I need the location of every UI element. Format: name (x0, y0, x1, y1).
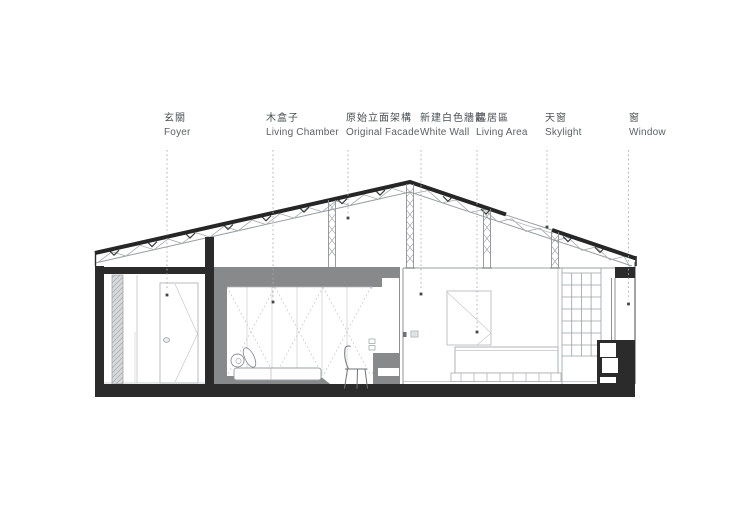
left-exterior-wall (95, 266, 104, 397)
roof-top-chord (95, 182, 636, 259)
white-wall-section (400, 268, 407, 384)
foyer-ceiling (104, 267, 214, 274)
label-original-facade: 原始立面架構 Original Facade (346, 114, 420, 138)
label-window-zh: 窗 (629, 114, 666, 124)
round-pillow (231, 354, 244, 367)
label-original-facade-en: Original Facade (346, 128, 420, 138)
right-header-beam (615, 267, 635, 278)
label-living-chamber: 木盒子 Living Chamber (266, 114, 339, 138)
label-living-area-en: Living Area (476, 128, 528, 138)
foyer (112, 275, 198, 384)
label-foyer: 玄關 Foyer (164, 114, 191, 138)
label-foyer-en: Foyer (164, 128, 191, 138)
grid-window (558, 268, 601, 384)
section-drawing (0, 0, 740, 523)
truss-post (550, 232, 560, 268)
foyer-door (160, 283, 198, 383)
label-living-area: 起居區 Living Area (476, 114, 528, 138)
label-window: 窗 Window (629, 114, 666, 138)
label-skylight-zh: 天窗 (545, 114, 582, 124)
truss-post (405, 184, 415, 268)
foyer-textured-wall (112, 275, 123, 384)
island-counter (451, 347, 561, 382)
roof-truss (95, 182, 636, 267)
door-handle (164, 338, 170, 343)
partition-wall (205, 237, 214, 397)
label-skylight-en: Skylight (545, 128, 582, 138)
label-living-chamber-en: Living Chamber (266, 128, 339, 138)
label-original-facade-zh: 原始立面架構 (346, 114, 420, 124)
label-foyer-zh: 玄關 (164, 114, 191, 124)
label-living-area-zh: 起居區 (476, 114, 528, 124)
label-window-en: Window (629, 128, 666, 138)
label-skylight: 天窗 Skylight (545, 114, 582, 138)
label-living-chamber-zh: 木盒子 (266, 114, 339, 124)
living-area-door-panel (447, 291, 491, 345)
floor-slab (95, 384, 635, 397)
wall-socket (411, 331, 418, 337)
truss-post (327, 200, 337, 268)
section-drawing-canvas: 玄關 Foyer 木盒子 Living Chamber 原始立面架構 Origi… (0, 0, 740, 523)
slatted-plinth (451, 373, 561, 382)
right-step-shelves (597, 340, 635, 384)
